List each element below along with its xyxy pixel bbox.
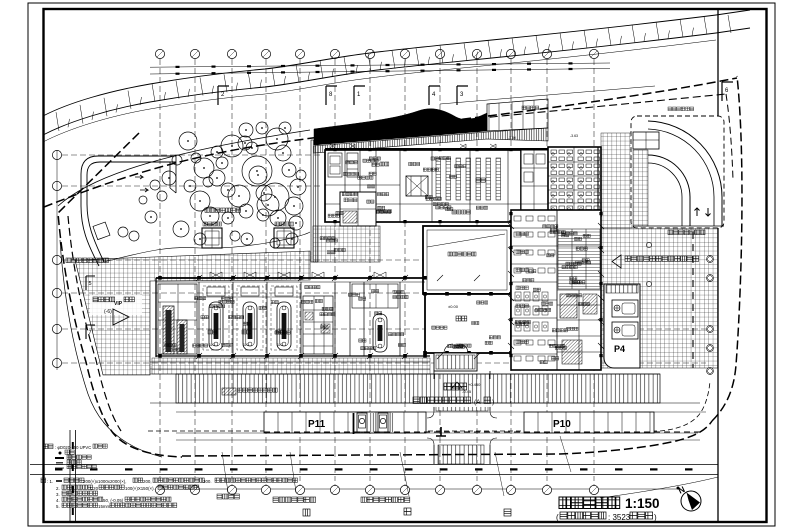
- svg-text:1:150: 1:150: [625, 496, 660, 511]
- svg-text:): ): [654, 513, 657, 522]
- svg-text:-3.63: -3.63: [570, 134, 578, 138]
- svg-text:C20: C20: [90, 486, 99, 491]
- svg-text:P11: P11: [308, 419, 326, 430]
- svg-text:50, (-0.05): 50, (-0.05): [103, 498, 124, 503]
- svg-text:5: 5: [89, 281, 92, 287]
- svg-text:-3.50: -3.50: [508, 136, 516, 140]
- svg-text:(: (: [556, 513, 559, 522]
- svg-text:300.: 300.: [203, 479, 212, 484]
- svg-text:200,: 200,: [143, 479, 152, 484]
- svg-text:3.: 3.: [56, 492, 60, 497]
- svg-text:: φD020-150 UPVC: : φD020-150 UPVC: [55, 445, 91, 450]
- svg-text:200(×)x1000x2000(×),: 200(×)x1000x2000(×),: [83, 479, 126, 484]
- svg-text:110: 110: [243, 343, 249, 347]
- svg-text:P4: P4: [614, 344, 625, 354]
- svg-text:±0.00: ±0.00: [448, 304, 459, 309]
- svg-text:110: 110: [277, 343, 283, 347]
- svg-text:2.: 2.: [56, 486, 60, 491]
- svg-text:VIP: VIP: [114, 301, 123, 307]
- svg-text:: 1.: : 1.: [47, 479, 53, 484]
- svg-text:P10: P10: [553, 419, 571, 430]
- svg-text:15mm: 15mm: [98, 504, 111, 509]
- svg-text:7: 7: [89, 330, 92, 336]
- svg-text:110: 110: [209, 343, 215, 347]
- svg-text:(-6): (-6): [104, 309, 112, 315]
- svg-text:5.: 5.: [56, 504, 60, 509]
- svg-text:100(×)X150(×).: 100(×)X150(×).: [125, 486, 155, 491]
- svg-text:: 3523: : 3523: [608, 513, 631, 522]
- svg-text:4.: 4.: [56, 498, 60, 503]
